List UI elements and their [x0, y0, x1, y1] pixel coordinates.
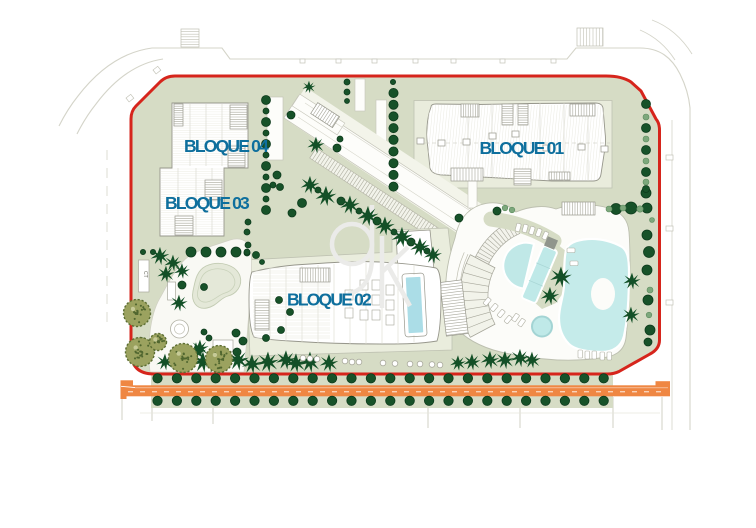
svg-text:CT: CT — [142, 271, 148, 278]
svg-text:BLOQUE 01: BLOQUE 01 — [480, 138, 565, 158]
svg-text:BLOQUE 02: BLOQUE 02 — [287, 290, 372, 310]
svg-text:BLOQUE 04: BLOQUE 04 — [184, 136, 269, 156]
svg-text:BLOQUE 03: BLOQUE 03 — [165, 193, 250, 213]
